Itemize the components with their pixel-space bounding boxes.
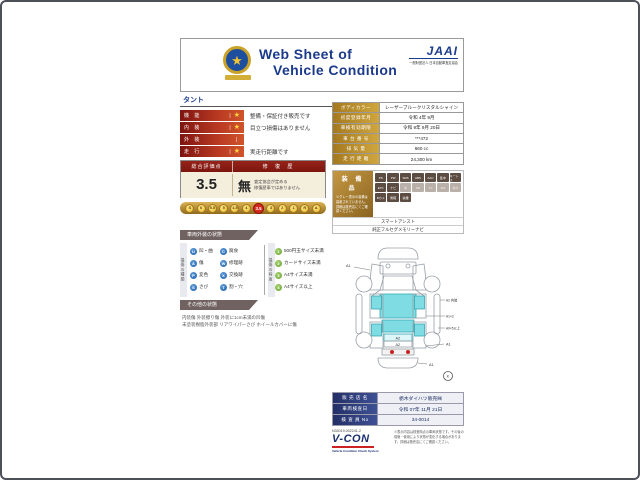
vehicle-info-label: 車 台 番 号	[333, 134, 379, 143]
vehicle-info-value: 660 cc	[379, 144, 463, 153]
vehicle-damage-diagram: A1 A2 内装 A1×3 A0×5以上 A1 A2 A2 A1 K	[334, 236, 462, 388]
vehicle-info-value: 令和 9年 9月 20日	[379, 124, 463, 133]
score-box: 総合評価点 修 復 歴 3.5 無 査定協会が定める 修復歴車ではありません	[180, 160, 326, 198]
equipment-badge: AAC	[425, 173, 436, 182]
rear-bumper-shape	[378, 358, 418, 368]
grade-scale-step: 1	[289, 204, 298, 213]
sales-info-label: 車両検査日	[333, 404, 377, 414]
damage-degree-item: 3A4サイズ未満	[275, 272, 324, 279]
sheet-title-line1: Web Sheet of	[259, 46, 397, 62]
other-section-banner: その他の状態	[180, 300, 258, 310]
other-condition-line1: 内装傷 外装擦り傷 外装に1cm未満の凹傷	[182, 314, 326, 321]
equipment-badge: TV	[425, 183, 436, 192]
rating-label-divider: |	[229, 125, 230, 131]
equipment-badge: ETC	[375, 183, 386, 192]
annotation-right-top: A2 内装	[446, 298, 458, 303]
rating-label-divider: |	[236, 137, 237, 143]
rating-star-icon: ★	[234, 148, 240, 155]
rating-star-icon: ★	[234, 124, 240, 131]
equipment-badge: SRS	[400, 173, 411, 182]
repair-note-line2: 修復歴車ではありません	[254, 185, 300, 190]
sales-info-value: 令和 07年 11月 21日	[377, 404, 463, 414]
vehicle-info-row: 車検有効期限令和 9年 9月 20日	[333, 124, 463, 134]
footer-disclaimer: ※表示内容は検査時点の車両状態です。その後の保管・使用により状態が変化する場合が…	[394, 430, 464, 444]
damage-degree-num-icon: 3	[275, 272, 282, 279]
damage-type-item: W修理跡	[220, 260, 258, 267]
damage-type-code-icon: A	[190, 260, 197, 267]
tail-lamp-left-mark	[390, 350, 394, 354]
exterior-section-banner: 車両外装の状態	[180, 230, 258, 240]
rating-comment: 実走行距離です	[250, 148, 289, 156]
equipment-badge: Bカメ	[375, 193, 386, 202]
vehicle-condition-sheet: ★ Web Sheet of Vehicle Condition JAAI 一般…	[0, 0, 640, 480]
vehicle-info-row: 排 気 量660 cc	[333, 144, 463, 154]
rating-row: 外 装|	[180, 134, 326, 145]
vcon-subtitle: Vehicle Condition Check System	[332, 449, 390, 453]
grade-scale-step: S	[185, 204, 194, 213]
right-front-wheel	[424, 276, 440, 292]
damage-type-text: 変色	[199, 272, 208, 278]
hood-shape	[380, 262, 416, 274]
damage-type-text: さび	[199, 284, 208, 290]
grade-scale: S65.554.543.5321RA	[180, 202, 326, 214]
equipment-badge: ナビ	[387, 183, 398, 192]
equipment-label-box: 装 備 品 ※グレー表示の装備は装着されていません。詳細は販売店にてご確認くださ…	[333, 171, 373, 217]
damage-type-code-icon: P	[190, 272, 197, 279]
annotation-mark-k: K	[447, 375, 450, 379]
sales-info-row: 販 売 店 名栃木ダイハツ販売㈱	[333, 393, 463, 404]
sales-info-row: 車両検査日令和 07年 11月 21日	[333, 404, 463, 415]
damage-type-text: 凹・曲	[199, 248, 213, 254]
damage-type-code-icon: S	[190, 284, 197, 291]
damage-type-item: A傷	[190, 260, 220, 267]
sales-info-row: 検 査 員 No34-0014	[333, 415, 463, 426]
equipment-badge: 革	[400, 183, 411, 192]
rating-label-divider: |	[229, 113, 230, 119]
damage-type-item: Sさび	[190, 284, 220, 291]
model-name: タント	[183, 95, 204, 105]
annotation-right-rear: A1	[446, 343, 451, 347]
equipment-badge: SR	[412, 183, 423, 192]
vehicle-info-table: ボディカラーレーザーブルークリスタルシャイン初度登録年月令和 4年 9月車検有効…	[332, 102, 464, 165]
sales-info-value: 34-0014	[377, 415, 463, 425]
equipment-section: 装 備 品 ※グレー表示の装備は装着されていません。詳細は販売店にてご確認くださ…	[332, 170, 464, 234]
rating-label: 内 装|★	[180, 122, 244, 133]
damage-type-code-icon: U	[190, 248, 197, 255]
annotation-rear-bumper: A1	[429, 363, 434, 367]
rating-label: 機 能|★	[180, 110, 244, 121]
tail-lamp-right-mark	[406, 350, 410, 354]
score-box-header: 総合評価点 修 復 歴	[181, 161, 325, 172]
sheet-title-line2: Vehicle Condition	[273, 62, 397, 78]
sales-info-table: 販 売 店 名栃木ダイハツ販売㈱車両検査日令和 07年 11月 21日検 査 員…	[332, 392, 464, 426]
sales-info-value: 栃木ダイハツ販売㈱	[377, 393, 463, 403]
left-front-wheel	[356, 276, 372, 292]
jaai-emblem-icon: ★	[223, 46, 251, 74]
damage-type-text: 腐食	[229, 248, 238, 254]
score-header-label: 総合評価点	[181, 161, 233, 172]
rating-label-text: 機 能	[184, 112, 229, 119]
vehicle-info-row: 走 行 距 離24,300 km	[333, 154, 463, 164]
rating-comment: 整備・保証付き販売です	[250, 112, 311, 120]
overall-score-value: 3.5	[181, 174, 233, 196]
equipment-badge: ABS	[412, 173, 423, 182]
damage-degree-item: 4A4サイズ以上	[275, 284, 324, 291]
repair-history-value: 無	[238, 176, 251, 195]
rating-label: 走 行|★	[180, 146, 244, 157]
left-sill-shape	[356, 294, 362, 334]
damage-type-code-icon: T	[220, 284, 227, 291]
damage-type-item: U凹・曲	[190, 248, 220, 255]
equipment-extra-1: スマートアシスト	[333, 217, 463, 225]
damage-degree-text: A4サイズ未満	[284, 272, 312, 278]
vehicle-info-label: 走 行 距 離	[333, 154, 379, 163]
damage-type-item: P変色	[190, 272, 220, 279]
vehicle-info-value: 令和 4年 9月	[379, 113, 463, 122]
vehicle-info-value: 24,300 km	[379, 154, 463, 163]
grade-scale-step: 3	[266, 204, 275, 213]
grade-scale-step: 5.5	[208, 204, 217, 213]
sales-info-label: 検 査 員 No	[333, 415, 377, 425]
rating-comment: 目立つ損傷はありません	[250, 124, 310, 132]
vehicle-info-label: ボディカラー	[333, 103, 379, 112]
damage-type-list: U凹・曲C腐食A傷W修理跡P変色X交換跡SさびT割・穴	[187, 243, 261, 297]
other-condition-text: 内装傷 外装擦り傷 外装に1cm未満の凹傷 未塗装樹脂外装部 リアワイパーさび …	[182, 314, 326, 328]
damage-degree-num-icon: 1	[275, 248, 282, 255]
equipment-badge: 集中	[437, 173, 448, 182]
rating-row: 走 行|★実走行距離です	[180, 146, 326, 157]
rating-label-divider: |	[229, 149, 230, 155]
vehicle-info-row: ボディカラーレーザーブルークリスタルシャイン	[333, 103, 463, 113]
rating-row: 内 装|★目立つ損傷はありません	[180, 122, 326, 133]
grade-scale-step: R	[300, 204, 309, 213]
vehicle-info-label: 初度登録年月	[333, 113, 379, 122]
score-box-body: 3.5 無 査定協会が定める 修復歴車ではありません	[181, 172, 325, 198]
equipment-badge: PW	[387, 173, 398, 182]
rating-star-icon: ★	[234, 112, 240, 119]
annotation-front-left: A1	[346, 264, 351, 268]
equipment-badge: AW	[437, 183, 448, 192]
equipment-badge: 寒冷	[450, 183, 461, 192]
rating-rows: 機 能|★整備・保証付き販売です内 装|★目立つ損傷はありません外 装|走 行|…	[180, 110, 326, 158]
equipment-note: ※グレー表示の装備は装着されていません。詳細は販売店にてご確認ください。	[336, 195, 370, 214]
rating-label-text: 内 装	[184, 124, 229, 131]
vehicle-info-row: 車 台 番 号***472	[333, 134, 463, 144]
jaai-logo-subtext: 一般財団法人 日本自動車査定協会	[409, 58, 458, 65]
repair-history-note: 査定協会が定める 修復歴車ではありません	[254, 179, 300, 190]
vehicle-info-label: 車検有効期限	[333, 124, 379, 133]
damage-degree-item: 2カードサイズ未満	[275, 260, 324, 267]
annotation-right-low: A0×5以上	[446, 326, 461, 331]
grade-scale-step: 6	[197, 204, 206, 213]
vcon-logo: V-CON	[332, 433, 390, 445]
annotation-right-mid: A1×3	[446, 315, 454, 319]
vehicle-info-value: ***472	[379, 134, 463, 143]
damage-type-item: C腐食	[220, 248, 258, 255]
legend-divider	[264, 245, 265, 295]
roof-glass-shape	[380, 294, 416, 318]
sheet-title: Web Sheet of Vehicle Condition	[259, 46, 397, 78]
right-rear-wheel	[424, 332, 440, 348]
equipment-badge: キーレス	[450, 173, 461, 182]
damage-legend: 損傷の種類 U凹・曲C腐食A傷W修理跡P変色X交換跡SさびT割・穴 損傷の程度 …	[180, 243, 326, 297]
vcon-accent-bar	[332, 446, 374, 448]
damage-degree-num-icon: 4	[275, 284, 282, 291]
rating-label-text: 外 装	[184, 136, 236, 143]
damage-type-code-icon: W	[220, 260, 227, 267]
damage-degree-text: A4サイズ以上	[284, 284, 312, 290]
damage-degree-text: 500円玉サイズ未満	[284, 248, 324, 254]
repair-header-label: 修 復 歴	[233, 161, 325, 172]
repair-note-line1: 査定協会が定める	[254, 179, 288, 184]
damage-type-label: 損傷の種類	[180, 243, 187, 297]
rear-glass-shape	[382, 320, 414, 332]
grade-scale-step: 2	[278, 204, 287, 213]
front-bumper-shape	[378, 248, 418, 259]
equipment-badge-grid: PSPWSRSABSAAC集中キーレスETCナビ革SRTVAW寒冷Bカメ衝軽禁煙	[373, 171, 463, 217]
sheet-header: ★ Web Sheet of Vehicle Condition JAAI 一般…	[180, 38, 464, 92]
grade-scale-step: 4.5	[230, 204, 239, 213]
damage-type-text: 割・穴	[229, 284, 243, 290]
grade-scale-step: 4	[242, 204, 251, 213]
rating-label: 外 装|	[180, 134, 244, 145]
other-condition-line2: 未塗装樹脂外装部 リアワイパーさび ホイールカバーに傷	[182, 321, 326, 328]
emblem-star-icon: ★	[231, 54, 243, 67]
vehicle-info-value: レーザーブルークリスタルシャイン	[379, 103, 463, 112]
annotation-tailgate-1: A2	[396, 337, 401, 341]
repair-history: 無 査定協会が定める 修復歴車ではありません	[233, 176, 300, 195]
grade-scale-step: A	[312, 204, 321, 213]
damage-type-text: 交換跡	[229, 272, 243, 278]
damage-degree-item: 1500円玉サイズ未満	[275, 248, 324, 255]
damage-degree-label: 損傷の程度	[268, 243, 275, 297]
equipment-badge: 禁煙	[400, 193, 411, 202]
equipment-badge: PS	[375, 173, 386, 182]
emblem-ribbon-icon	[225, 75, 251, 80]
rating-label-text: 走 行	[184, 148, 229, 155]
damage-degree-text: カードサイズ未満	[284, 260, 321, 266]
left-rear-wheel	[356, 332, 372, 348]
equipment-title: 装 備 品	[336, 174, 370, 192]
windshield-shape	[380, 276, 416, 290]
annotation-tailgate-2: A2	[396, 343, 401, 347]
footer-left: N34019-002241-2 V-CON Vehicle Condition …	[332, 429, 390, 453]
damage-degree-num-icon: 2	[275, 260, 282, 267]
grade-scale-step: 5	[219, 204, 228, 213]
equipment-extra-2: 純正フルセグメモリーナビ	[333, 225, 463, 233]
damage-type-item: X交換跡	[220, 272, 258, 279]
damage-type-item: T割・穴	[220, 284, 258, 291]
equipment-badge: 衝軽	[387, 193, 398, 202]
damage-type-code-icon: X	[220, 272, 227, 279]
damage-type-text: 修理跡	[229, 260, 243, 266]
rating-row: 機 能|★整備・保証付き販売です	[180, 110, 326, 121]
damage-type-code-icon: C	[220, 248, 227, 255]
sales-info-label: 販 売 店 名	[333, 393, 377, 403]
jaai-logo-text: JAAI	[409, 44, 458, 58]
grade-scale-active: 3.5	[253, 203, 264, 214]
jaai-logo: JAAI 一般財団法人 日本自動車査定協会	[409, 44, 458, 65]
vehicle-info-row: 初度登録年月令和 4年 9月	[333, 113, 463, 123]
damage-degree-list: 1500円玉サイズ未満2カードサイズ未満3A4サイズ未満4A4サイズ以上	[275, 243, 324, 297]
vehicle-info-label: 排 気 量	[333, 144, 379, 153]
damage-type-text: 傷	[199, 260, 204, 266]
